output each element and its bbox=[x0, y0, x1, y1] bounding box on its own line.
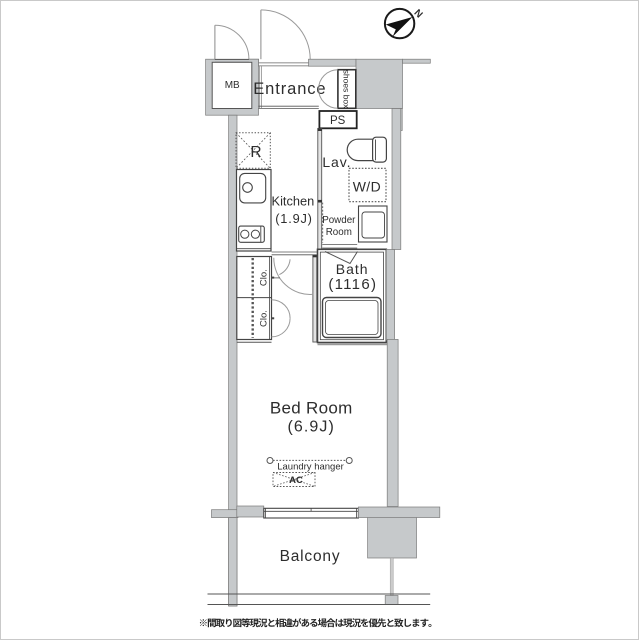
svg-text:(1116): (1116) bbox=[328, 276, 377, 293]
svg-text:MB: MB bbox=[225, 80, 240, 91]
svg-text:Bed Room: Bed Room bbox=[270, 398, 353, 417]
svg-text:Powder: Powder bbox=[322, 215, 356, 226]
svg-text:(6.9J): (6.9J) bbox=[287, 418, 335, 435]
svg-text:(1.9J): (1.9J) bbox=[275, 211, 313, 226]
svg-text:Lav.: Lav. bbox=[322, 154, 351, 170]
svg-text:Balcony: Balcony bbox=[280, 548, 341, 565]
svg-text:Laundry hanger: Laundry hanger bbox=[277, 462, 344, 473]
svg-text:Kitchen: Kitchen bbox=[272, 193, 315, 208]
svg-text:Entrance: Entrance bbox=[253, 80, 326, 98]
svg-text:PS: PS bbox=[330, 115, 346, 127]
svg-text:AC: AC bbox=[289, 475, 303, 486]
svg-text:Clo.: Clo. bbox=[258, 269, 269, 286]
svg-text:Bath: Bath bbox=[336, 261, 369, 277]
svg-text:Room: Room bbox=[326, 227, 352, 238]
svg-text:Clo.: Clo. bbox=[258, 310, 269, 327]
svg-text:shoes box: shoes box bbox=[342, 70, 352, 109]
svg-text:R: R bbox=[250, 144, 261, 161]
svg-text:W/D: W/D bbox=[353, 178, 381, 194]
